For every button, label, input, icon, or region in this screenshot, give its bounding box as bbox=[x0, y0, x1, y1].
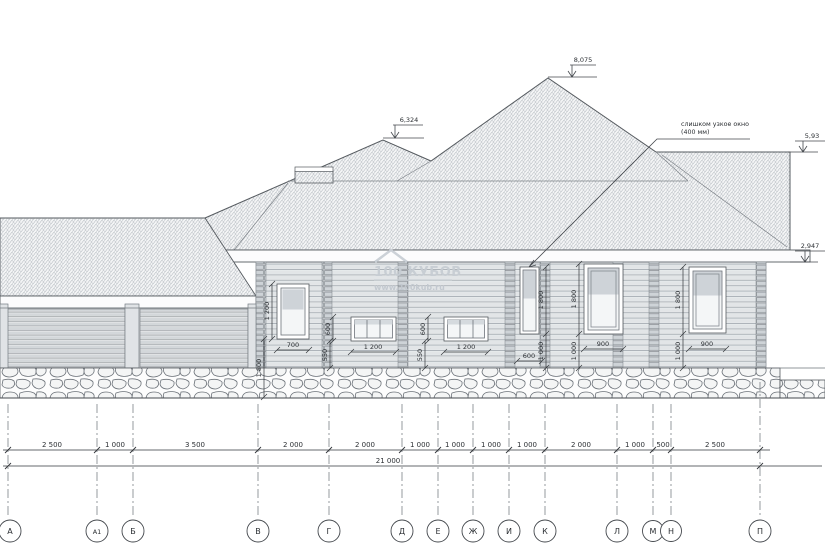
watermark-brand: 100 КУБОВ bbox=[374, 265, 462, 280]
main-eaves-fascia bbox=[213, 250, 810, 262]
dim-segment: 2 500 bbox=[705, 441, 725, 449]
dim-segment: 2 000 bbox=[571, 441, 591, 449]
note-line1: слишком узкое окно bbox=[681, 121, 749, 128]
window-w3 bbox=[444, 317, 488, 341]
dim-w4-height: 1 800 bbox=[537, 291, 545, 310]
axis-label: Д bbox=[399, 527, 405, 536]
dim-segment: 2 000 bbox=[283, 441, 303, 449]
elevation-value: 6,324 bbox=[400, 116, 419, 124]
window-w2 bbox=[351, 317, 396, 341]
axis-label: А1 bbox=[93, 528, 102, 536]
axis-label: Н bbox=[668, 527, 674, 536]
dim-segment: 1 000 bbox=[625, 441, 645, 449]
dim-segment: 1 000 bbox=[105, 441, 125, 449]
stone-foundation bbox=[0, 368, 825, 398]
louver-panel-right bbox=[140, 309, 248, 367]
drawing-sheet: 100 КУБОВ www.100kub.ru 8,075 6,324 5,93… bbox=[0, 0, 825, 550]
dim-segment: 2 000 bbox=[355, 441, 375, 449]
main-roof-silhouette bbox=[205, 78, 790, 250]
dim-segment: 500 bbox=[656, 441, 669, 449]
dim-w2-height: 600 bbox=[324, 323, 332, 335]
axis-label: Б bbox=[130, 527, 136, 536]
axis-label: И bbox=[506, 527, 512, 536]
dim-w3-below: 550 bbox=[416, 349, 424, 361]
dim-w1-height: 1 200 bbox=[263, 302, 271, 321]
window-w5 bbox=[584, 264, 623, 334]
dim-w4-width: 600 bbox=[523, 352, 535, 360]
dim-w1-width: 700 bbox=[287, 341, 299, 349]
facade-elevation-drawing: 100 КУБОВ www.100kub.ru 8,075 6,324 5,93… bbox=[0, 0, 825, 550]
dim-w6-width: 900 bbox=[701, 340, 713, 348]
dim-segment: 1 000 bbox=[481, 441, 501, 449]
elevation-marker-main-ridge: 8,075 bbox=[548, 56, 597, 77]
roof-dormer bbox=[295, 167, 333, 183]
axis-label: А bbox=[7, 527, 13, 536]
dim-w4-below: 1 000 bbox=[537, 342, 545, 361]
axis-label: Е bbox=[435, 527, 440, 536]
axis-label: В bbox=[255, 527, 261, 536]
elevation-value: 2,947 bbox=[801, 242, 820, 250]
dim-w3-height: 600 bbox=[419, 323, 427, 335]
dim-w6-below: 1 000 bbox=[674, 342, 682, 361]
dim-w3-width: 1 200 bbox=[457, 343, 476, 351]
elevation-value: 5,93 bbox=[805, 132, 819, 140]
elevation-marker-small-ridge: 6,324 bbox=[383, 116, 424, 138]
dim-segment: 1 000 bbox=[445, 441, 465, 449]
louver-panel-left bbox=[2, 309, 125, 367]
dim-segment: 1 000 bbox=[517, 441, 537, 449]
axis-label: П bbox=[757, 527, 763, 536]
dim-w1-below: 1 800 bbox=[255, 359, 263, 378]
window-w6 bbox=[689, 267, 726, 333]
window-w1 bbox=[277, 284, 309, 339]
dim-w2-below: 550 bbox=[321, 349, 329, 361]
dim-w6-height: 1 800 bbox=[674, 291, 682, 310]
axis-label: М bbox=[650, 527, 657, 536]
watermark-url: www.100kub.ru bbox=[374, 283, 445, 292]
dimension-chain: 2 500 1 000 3 500 2 000 2 000 1 000 1 00… bbox=[3, 441, 822, 469]
elevation-marker-right-roof-top: 5,93 bbox=[788, 132, 825, 152]
axis-grid-lines bbox=[8, 382, 760, 516]
dim-segment: 3 500 bbox=[185, 441, 205, 449]
dim-total: 21 000 bbox=[376, 457, 401, 465]
axis-label: К bbox=[542, 527, 548, 536]
terrace-railing bbox=[0, 304, 256, 368]
axis-bubbles: А А1 Б В Г Д Е Ж И К Л М Н П bbox=[0, 520, 771, 542]
dim-w2-width: 1 200 bbox=[364, 343, 383, 351]
dim-segment: 1 000 bbox=[410, 441, 430, 449]
elevation-value: 8,075 bbox=[574, 56, 593, 64]
dim-segment: 2 500 bbox=[42, 441, 62, 449]
dim-w5-height: 1 800 bbox=[570, 290, 578, 309]
dim-w5-below: 1 000 bbox=[570, 342, 578, 361]
axis-label: Ж bbox=[469, 527, 478, 536]
dim-w5-width: 900 bbox=[597, 340, 609, 348]
axis-label: Г bbox=[327, 527, 332, 536]
axis-label: Л bbox=[614, 527, 620, 536]
note-line2: (400 мм) bbox=[681, 129, 709, 136]
